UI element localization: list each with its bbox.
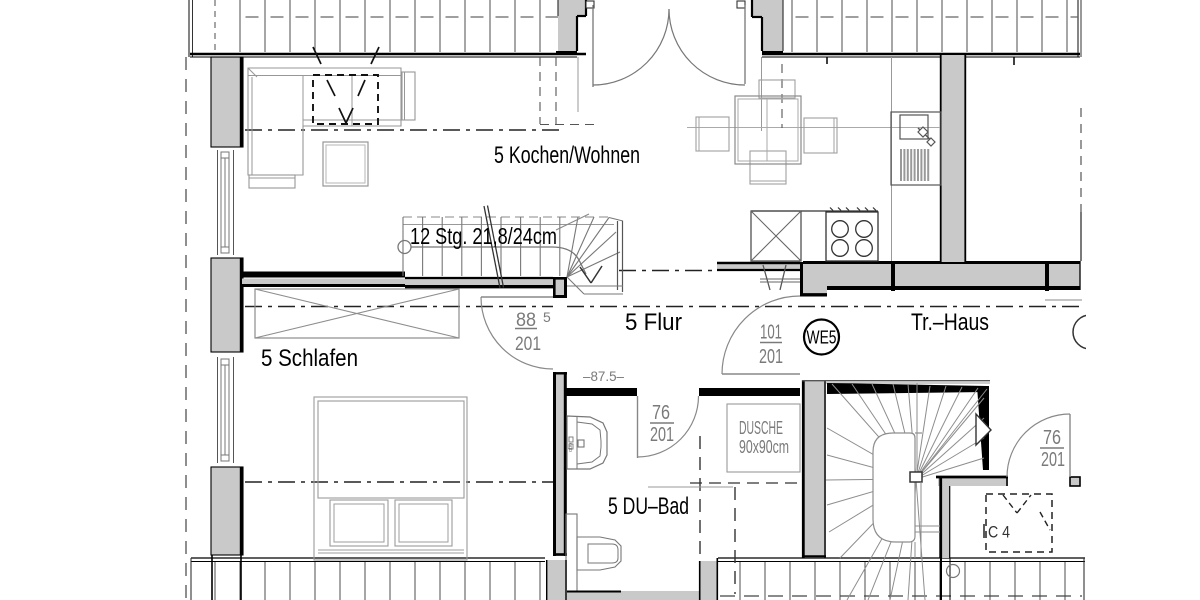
- svg-text:5 Kochen/Wohnen: 5 Kochen/Wohnen: [494, 142, 640, 169]
- svg-text:201: 201: [759, 346, 783, 368]
- svg-text:201: 201: [650, 424, 674, 446]
- svg-text:201: 201: [515, 334, 541, 355]
- svg-text:12 Stg. 21,8/24cm: 12 Stg. 21,8/24cm: [410, 223, 557, 249]
- svg-text:5 Schlafen: 5 Schlafen: [261, 345, 358, 372]
- svg-text:76: 76: [1043, 427, 1061, 449]
- svg-text:obo: obo: [568, 443, 574, 452]
- svg-text:C 4: C 4: [988, 523, 1010, 542]
- svg-text:Tr.–Haus: Tr.–Haus: [911, 309, 989, 336]
- svg-text:201: 201: [1041, 449, 1065, 471]
- svg-text:76: 76: [652, 402, 670, 424]
- svg-text:5: 5: [543, 309, 551, 325]
- svg-text:WE5: WE5: [807, 328, 837, 348]
- svg-text:DUSCHE: DUSCHE: [739, 418, 783, 438]
- svg-text:5 Flur: 5 Flur: [625, 309, 682, 336]
- svg-text:101: 101: [760, 322, 782, 344]
- svg-text:5 DU–Bad: 5 DU–Bad: [608, 493, 689, 520]
- svg-text:–87.5–: –87.5–: [583, 368, 624, 384]
- svg-text:90x90cm: 90x90cm: [739, 437, 789, 457]
